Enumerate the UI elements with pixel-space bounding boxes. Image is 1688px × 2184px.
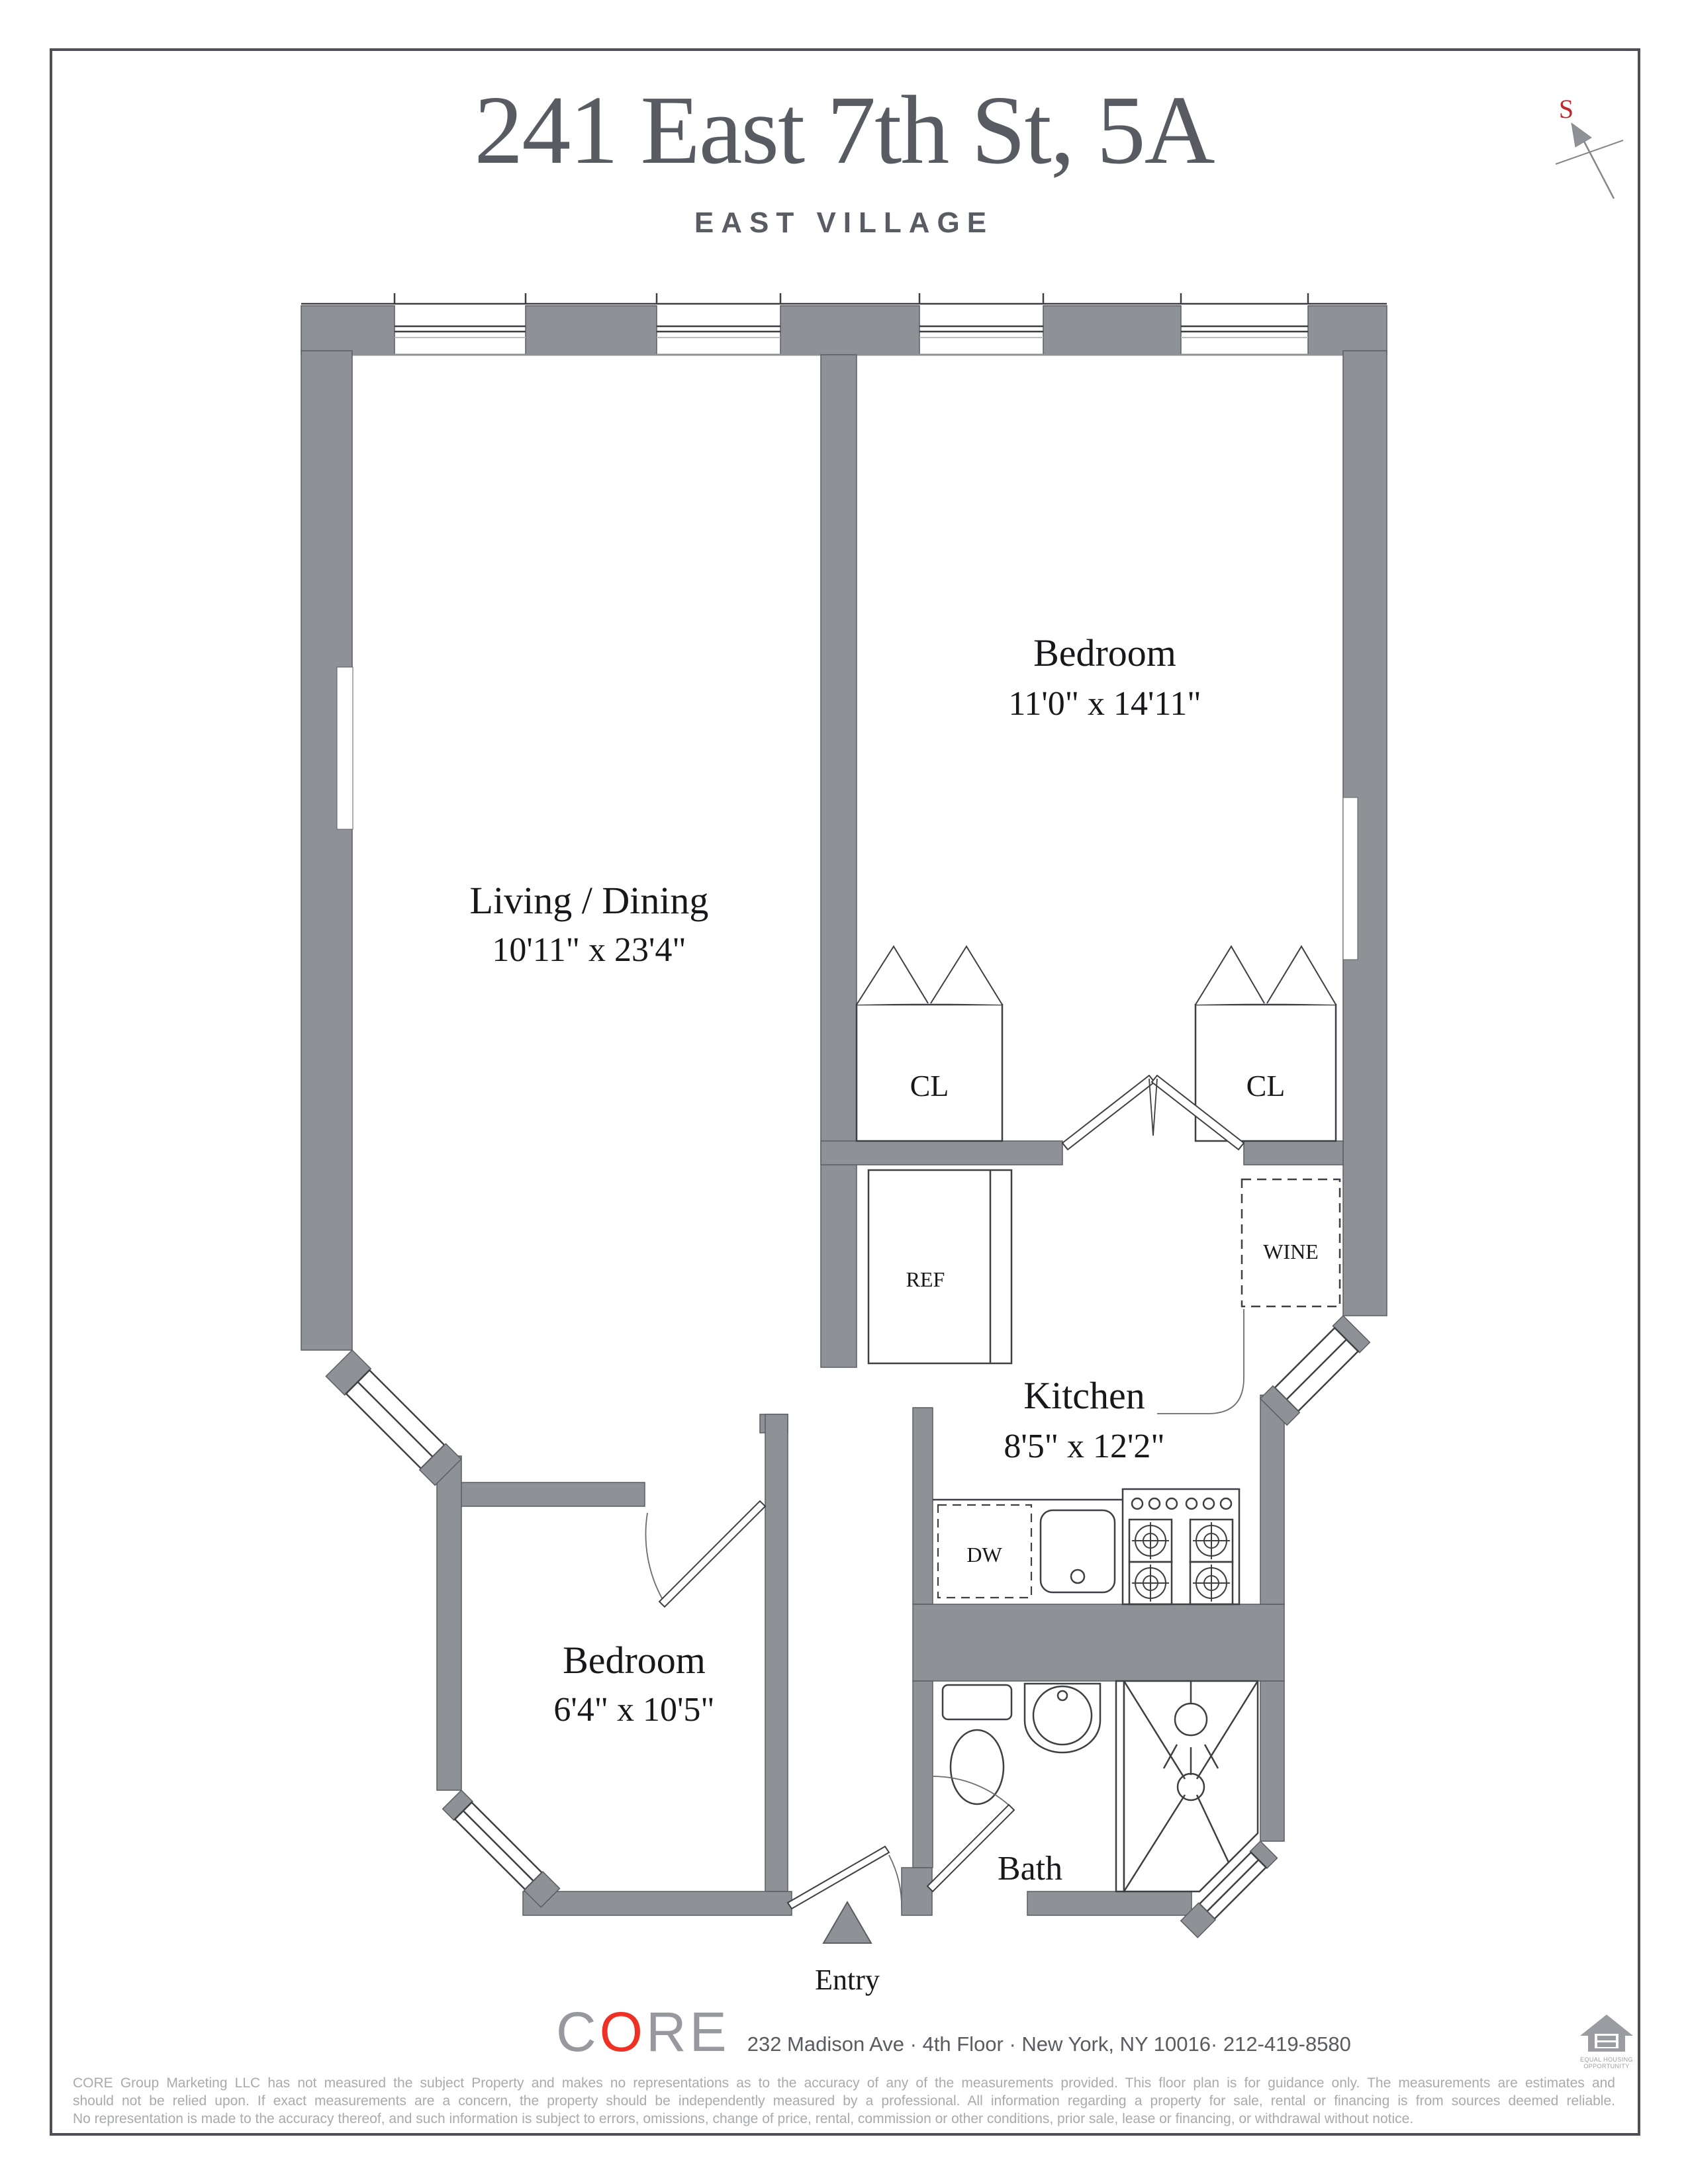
refrigerator: REF	[868, 1170, 1011, 1363]
bath-sink	[1025, 1684, 1100, 1752]
closet-right: CL	[1196, 946, 1336, 1141]
kitchen-sink	[1041, 1510, 1115, 1592]
equal-housing-logo: EQUAL HOUSING OPPORTUNITY	[1578, 2012, 1635, 2070]
disclaimer-line-3: No representation is made to the accurac…	[73, 2110, 1615, 2128]
kitchen-fixtures: DW	[933, 1489, 1239, 1604]
bedroom-lower-dims: 6'4" x 10'5"	[553, 1691, 714, 1729]
floor-plan-page: 241 East 7th St, 5A EAST VILLAGE S	[0, 0, 1688, 2184]
equal-housing-text2: OPPORTUNITY	[1578, 2063, 1635, 2070]
compass-south-label: S	[1559, 94, 1573, 124]
shower-partition	[1116, 1681, 1124, 1891]
shower	[1124, 1681, 1258, 1891]
closet-left: CL	[857, 946, 1002, 1141]
bedroom-upper-label: Bedroom	[1033, 631, 1176, 674]
bedroom-door	[645, 1501, 765, 1607]
core-logo-o: O	[600, 2001, 646, 2063]
floor-plan-drawing: S	[0, 0, 1688, 2184]
living-room-label: Living / Dining	[470, 879, 709, 922]
refrigerator-label: REF	[906, 1267, 945, 1291]
bay-window-living-sw	[326, 1350, 461, 1485]
compass-icon: S	[1556, 94, 1623, 199]
core-logo-re: RE	[646, 2001, 730, 2063]
bath-label: Bath	[998, 1850, 1062, 1888]
entry-arrow-icon	[823, 1902, 871, 1943]
equal-housing-house-icon	[1579, 2012, 1634, 2053]
window-ticks	[395, 293, 1308, 304]
bay-window-bedroom-sw	[443, 1790, 560, 1907]
equal-housing-text1: EQUAL HOUSING	[1578, 2056, 1635, 2063]
stove	[1123, 1489, 1239, 1604]
kitchen-dims: 8'5" x 12'2"	[1004, 1428, 1164, 1465]
footer-brand-row: CORE 232 Madison Ave · 4th Floor · New Y…	[556, 2000, 1351, 2064]
bedroom-lower-label: Bedroom	[563, 1639, 706, 1682]
entry-door	[788, 1846, 902, 1909]
kitchen-counter-edge	[1157, 1309, 1244, 1414]
closet-left-label: CL	[910, 1069, 949, 1103]
wine-label: WINE	[1263, 1240, 1319, 1263]
office-address: 232 Madison Ave · 4th Floor · New York, …	[747, 2032, 1351, 2056]
core-logo-c: C	[556, 2001, 600, 2063]
dishwasher: DW	[938, 1505, 1031, 1598]
entry-marker	[823, 1902, 871, 1943]
living-room-dims: 10'11" x 23'4"	[492, 931, 686, 969]
dishwasher-label: DW	[966, 1543, 1002, 1567]
bedroom-upper-dims: 11'0" x 14'11"	[1008, 685, 1201, 723]
disclaimer-block: CORE Group Marketing LLC has not measure…	[73, 2074, 1615, 2128]
core-logo: CORE	[556, 2000, 730, 2064]
entry-label: Entry	[815, 1964, 880, 1996]
bay-window-bedroom-se	[1260, 1316, 1370, 1425]
disclaimer-line-1: CORE Group Marketing LLC has not measure…	[73, 2074, 1615, 2092]
disclaimer-line-2: should not be relied upon. If exact meas…	[73, 2092, 1615, 2110]
wine-cooler: WINE	[1242, 1179, 1340, 1306]
bath-fixtures	[943, 1681, 1258, 1891]
kitchen-label: Kitchen	[1023, 1374, 1145, 1417]
toilet	[943, 1685, 1011, 1804]
closet-right-label: CL	[1246, 1069, 1286, 1103]
